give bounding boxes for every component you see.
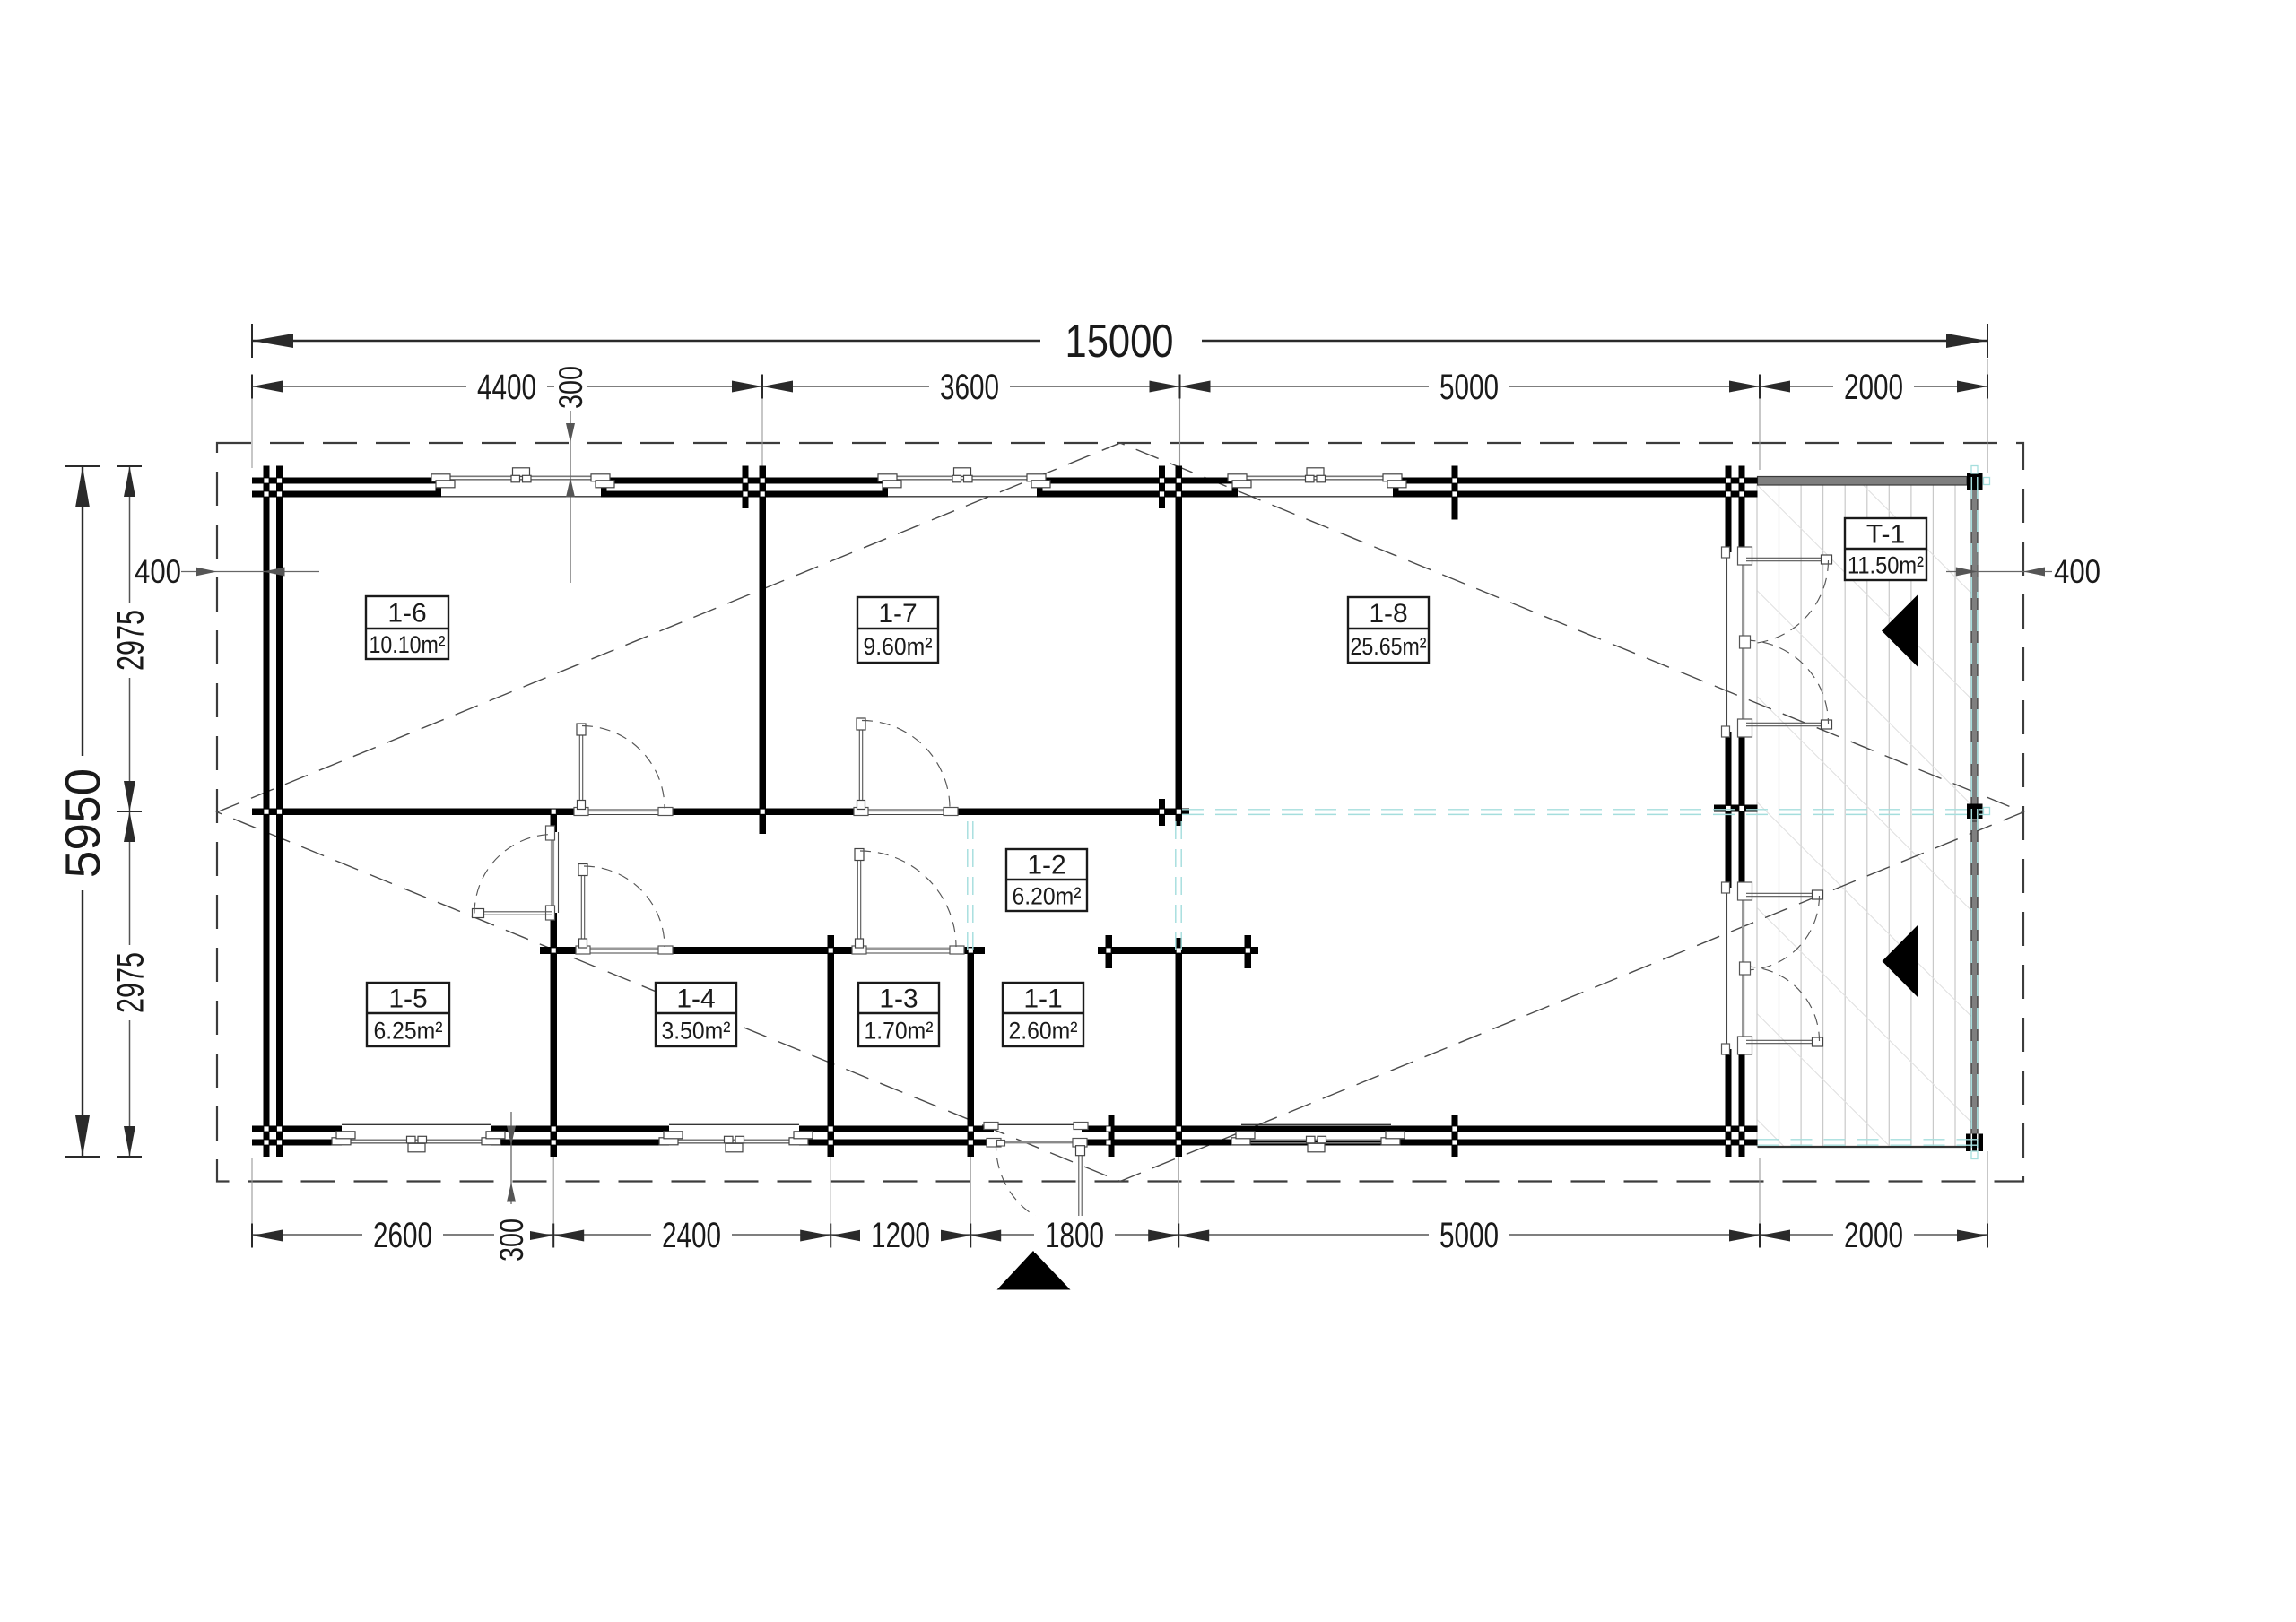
svg-text:1800: 1800	[1045, 1216, 1104, 1255]
svg-text:1-8: 1-8	[1369, 599, 1407, 629]
svg-text:300: 300	[552, 366, 589, 409]
svg-text:3.50m²: 3.50m²	[662, 1018, 731, 1045]
svg-text:11.50m²: 11.50m²	[1848, 552, 1924, 579]
svg-text:1-6: 1-6	[387, 599, 426, 629]
svg-text:2.60m²: 2.60m²	[1009, 1018, 1078, 1045]
svg-text:1.70m²: 1.70m²	[865, 1018, 934, 1045]
svg-text:2000: 2000	[1844, 368, 1903, 407]
svg-text:5950: 5950	[55, 768, 110, 878]
svg-text:1-2: 1-2	[1027, 851, 1065, 880]
svg-text:9.60m²: 9.60m²	[864, 633, 933, 660]
svg-text:1200: 1200	[871, 1216, 930, 1255]
svg-text:6.25m²: 6.25m²	[374, 1018, 443, 1045]
svg-text:5000: 5000	[1439, 1216, 1499, 1255]
svg-text:1-7: 1-7	[878, 599, 917, 629]
svg-text:1-1: 1-1	[1023, 984, 1062, 1014]
svg-text:1-3: 1-3	[879, 984, 918, 1014]
svg-text:400: 400	[135, 553, 181, 590]
svg-text:1-4: 1-4	[676, 984, 715, 1014]
svg-text:10.10m²: 10.10m²	[370, 631, 446, 658]
svg-text:4400: 4400	[477, 368, 536, 407]
svg-text:1-5: 1-5	[388, 984, 427, 1014]
svg-text:300: 300	[493, 1219, 530, 1262]
svg-text:3600: 3600	[940, 368, 999, 407]
svg-text:25.65m²: 25.65m²	[1351, 633, 1427, 660]
svg-text:2000: 2000	[1844, 1216, 1903, 1255]
svg-text:T-1: T-1	[1866, 520, 1905, 550]
svg-text:2600: 2600	[373, 1216, 432, 1255]
svg-text:5000: 5000	[1439, 368, 1499, 407]
svg-text:2975: 2975	[109, 610, 152, 671]
svg-text:2975: 2975	[109, 952, 152, 1013]
svg-text:6.20m²: 6.20m²	[1013, 883, 1082, 910]
svg-text:15000: 15000	[1065, 316, 1174, 368]
svg-text:2400: 2400	[662, 1216, 721, 1255]
svg-text:400: 400	[2054, 553, 2100, 590]
